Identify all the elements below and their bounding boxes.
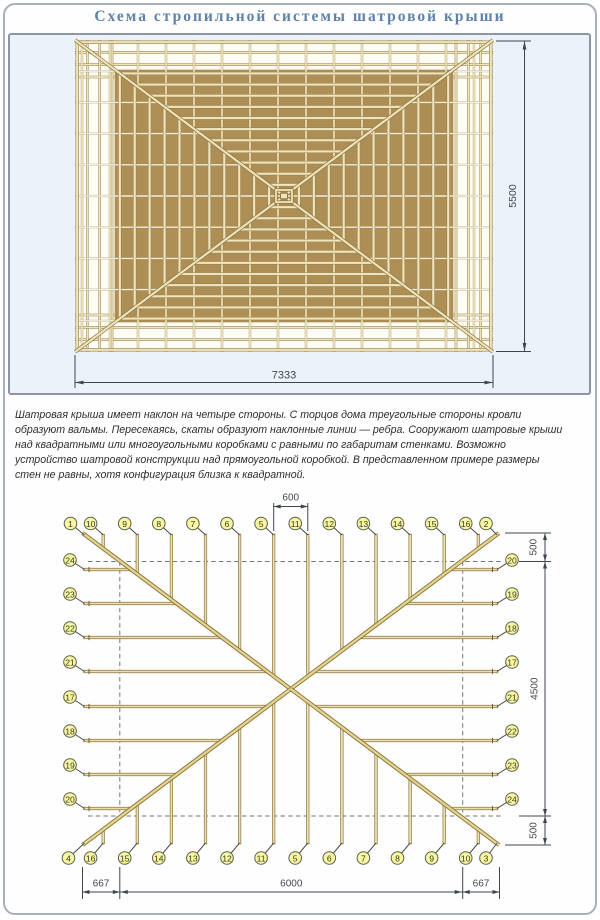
svg-text:21: 21 [507, 692, 517, 702]
svg-text:24: 24 [507, 794, 517, 804]
svg-text:23: 23 [65, 589, 75, 599]
svg-text:3: 3 [484, 853, 489, 863]
svg-text:4500: 4500 [530, 677, 541, 700]
svg-text:22: 22 [507, 726, 517, 736]
svg-text:16: 16 [86, 853, 96, 863]
svg-text:7333: 7333 [272, 370, 296, 382]
svg-text:500: 500 [529, 822, 540, 839]
svg-text:7: 7 [361, 853, 366, 863]
svg-text:17: 17 [507, 657, 517, 667]
svg-text:5: 5 [293, 853, 298, 863]
svg-text:18: 18 [65, 726, 75, 736]
svg-text:11: 11 [257, 853, 266, 863]
svg-text:19: 19 [65, 760, 75, 770]
svg-text:22: 22 [65, 623, 75, 633]
svg-text:8: 8 [156, 519, 161, 529]
svg-text:500: 500 [529, 538, 540, 555]
svg-text:17: 17 [65, 692, 75, 702]
svg-text:20: 20 [507, 555, 517, 565]
svg-text:9: 9 [429, 853, 434, 863]
svg-text:6: 6 [327, 853, 332, 863]
svg-text:1: 1 [68, 519, 73, 529]
svg-text:5500: 5500 [507, 184, 519, 208]
svg-text:600: 600 [282, 493, 299, 504]
svg-text:23: 23 [507, 760, 517, 770]
svg-text:11: 11 [291, 519, 300, 529]
svg-text:10: 10 [461, 853, 471, 863]
svg-text:667: 667 [93, 879, 110, 890]
svg-text:13: 13 [359, 519, 369, 529]
svg-text:14: 14 [393, 519, 403, 529]
svg-text:6: 6 [225, 519, 230, 529]
svg-text:21: 21 [65, 657, 75, 667]
svg-text:16: 16 [461, 519, 471, 529]
svg-text:20: 20 [65, 794, 75, 804]
svg-text:12: 12 [222, 853, 232, 863]
svg-text:10: 10 [86, 519, 96, 529]
svg-text:7: 7 [191, 519, 196, 529]
svg-text:19: 19 [507, 589, 517, 599]
svg-text:6000: 6000 [280, 879, 303, 890]
svg-text:15: 15 [120, 853, 130, 863]
svg-text:8: 8 [395, 853, 400, 863]
svg-text:12: 12 [325, 519, 335, 529]
svg-text:13: 13 [188, 853, 198, 863]
svg-text:15: 15 [427, 519, 437, 529]
svg-text:14: 14 [154, 853, 164, 863]
svg-text:667: 667 [473, 879, 490, 890]
svg-text:24: 24 [65, 555, 75, 565]
svg-text:9: 9 [122, 519, 127, 529]
svg-text:5: 5 [259, 519, 264, 529]
svg-text:18: 18 [507, 623, 517, 633]
svg-text:2: 2 [484, 519, 489, 529]
svg-text:4: 4 [66, 853, 71, 863]
